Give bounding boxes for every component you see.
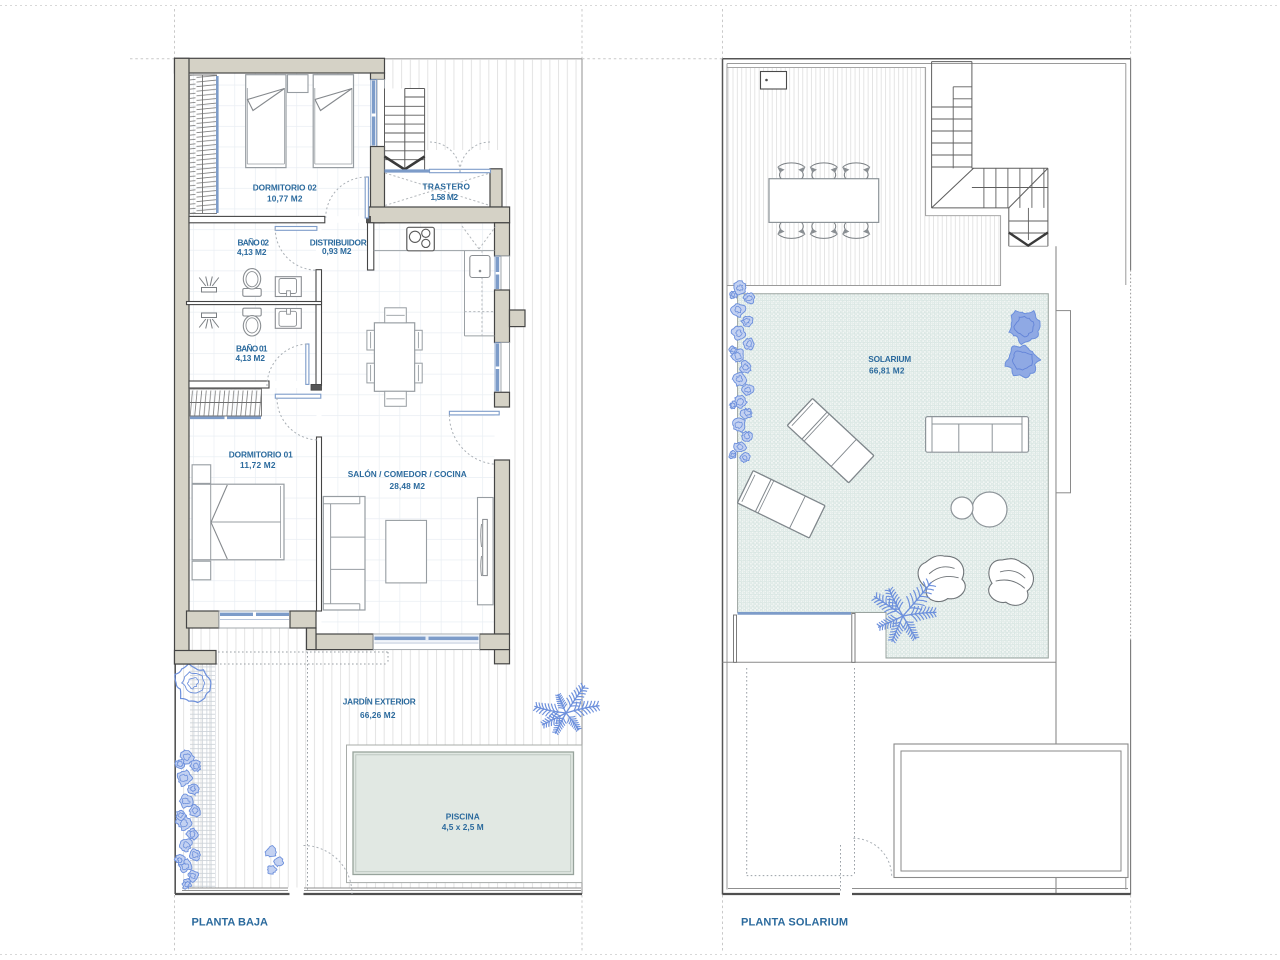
svg-text:4,13 M2: 4,13 M2 [236, 353, 266, 363]
svg-text:4,13 M2: 4,13 M2 [237, 247, 267, 257]
svg-text:28,48 M2: 28,48 M2 [390, 481, 426, 491]
svg-text:SALÓN / COMEDOR / COCINA: SALÓN / COMEDOR / COCINA [348, 468, 468, 479]
svg-text:SOLARIUM: SOLARIUM [868, 354, 912, 364]
svg-text:PLANTA SOLARIUM: PLANTA SOLARIUM [741, 917, 849, 929]
svg-text:TRASTERO: TRASTERO [423, 182, 471, 192]
svg-text:DORMITORIO 01: DORMITORIO 01 [229, 450, 294, 460]
svg-text:66,26 M2: 66,26 M2 [360, 710, 396, 720]
svg-text:0,93 M2: 0,93 M2 [322, 246, 352, 256]
svg-text:PLANTA BAJA: PLANTA BAJA [192, 917, 270, 929]
svg-text:66,81 M2: 66,81 M2 [869, 366, 905, 376]
svg-text:10,77 M2: 10,77 M2 [267, 194, 303, 204]
svg-text:PISCINA: PISCINA [446, 812, 481, 822]
svg-text:1,58 M2: 1,58 M2 [431, 192, 459, 202]
svg-text:4,5 x 2,5 M: 4,5 x 2,5 M [442, 822, 485, 832]
svg-text:DORMITORIO 02: DORMITORIO 02 [253, 183, 318, 193]
svg-text:JARDÍN EXTERIOR: JARDÍN EXTERIOR [343, 697, 417, 707]
svg-text:11,72 M2: 11,72 M2 [240, 460, 276, 470]
